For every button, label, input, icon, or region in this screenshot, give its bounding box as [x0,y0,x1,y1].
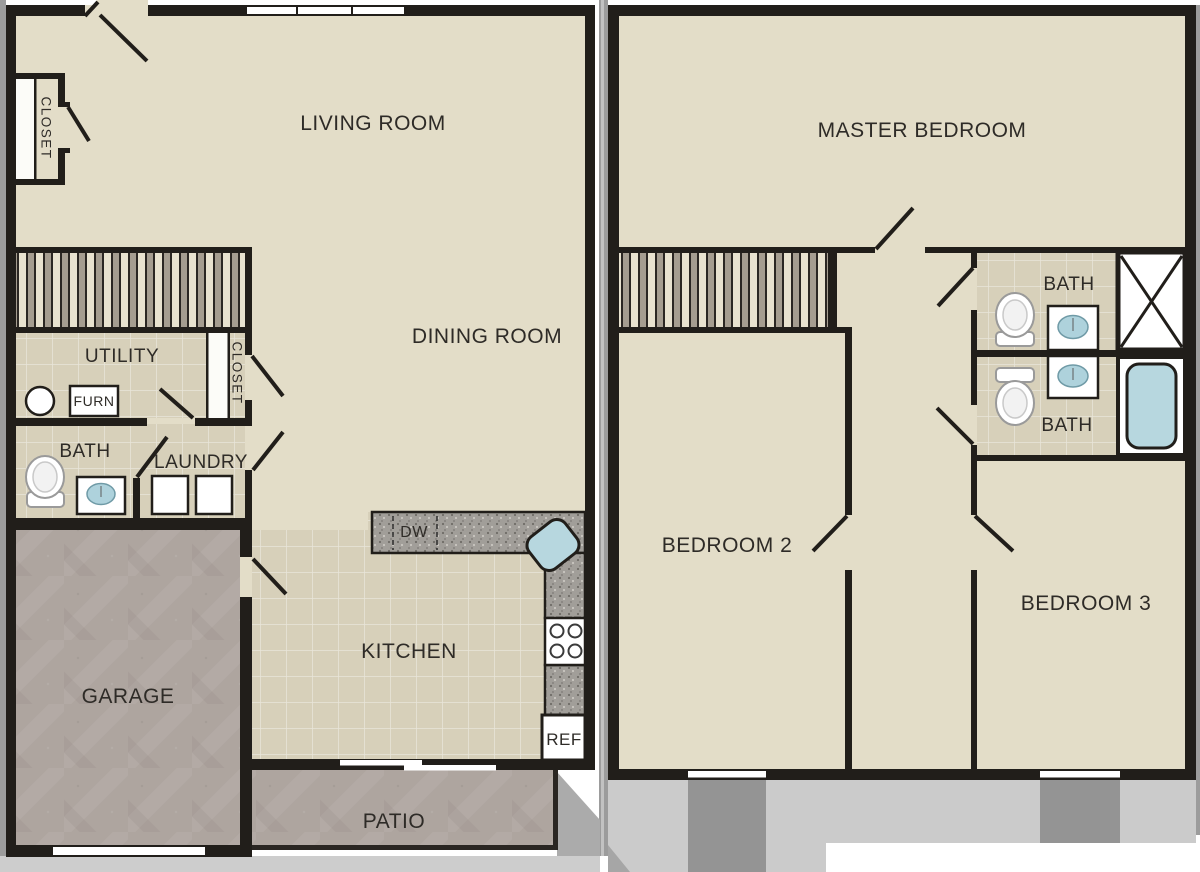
dishwasher-label: DW [400,524,428,542]
stairs-second-floor [619,252,828,327]
hall-closet-door [206,333,230,418]
stove-fixture [545,618,585,665]
room-label-laundry: LAUNDRY [154,452,248,474]
room-label-bath-lower: BATH [1041,415,1092,437]
refrigerator-label: REF [546,730,582,750]
sink-upper-fixture [1048,306,1098,350]
room-label-bedroom-2: BEDROOM 2 [662,534,793,558]
sink-fixture [77,477,125,514]
bathtub-fixture [1118,357,1185,455]
room-label-master-bedroom: MASTER BEDROOM [818,119,1027,143]
garage-door [53,847,205,855]
toilet-lower-fixture [996,368,1034,425]
room-label-utility: UTILITY [85,346,159,368]
entry-closet-door [16,79,37,179]
sink-lower-fixture [1048,356,1098,398]
toilet-fixture [26,456,64,507]
water-heater-fixture [26,387,54,415]
living-room-window [245,5,406,16]
room-label-garage: GARAGE [82,685,175,709]
stairs-first-floor [16,253,245,327]
room-label-bath-first-floor: BATH [59,441,110,463]
dryer-fixture [196,476,232,514]
room-label-patio: PATIO [363,810,425,834]
room-label-bedroom-3: BEDROOM 3 [1021,592,1152,616]
room-label-kitchen: KITCHEN [361,640,457,664]
linen-closet [1118,252,1185,350]
furnace-label: FURN [74,393,115,409]
washer-fixture [152,476,188,514]
room-label-living-room: LIVING ROOM [300,112,446,136]
room-label-dining-room: DINING ROOM [412,325,562,349]
floor-plan-page: LIVING ROOM DINING ROOM CLOSET UTILITY F… [0,0,1200,872]
room-label-entry-closet: CLOSET [39,96,54,159]
toilet-upper-fixture [996,293,1034,346]
room-label-bath-upper: BATH [1043,274,1094,296]
room-label-hall-closet: CLOSET [230,341,245,404]
